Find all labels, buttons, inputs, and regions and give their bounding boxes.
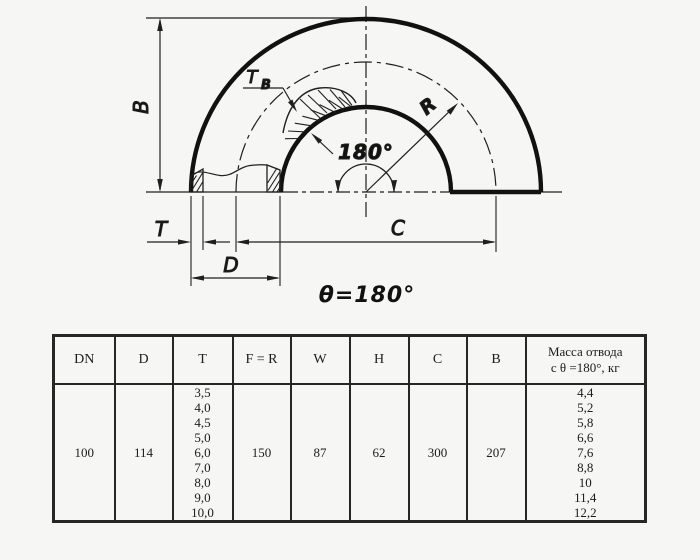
cell-t: 3,5 4,0 4,5 5,0 6,0 7,0 8,0 9,0 10,0 <box>173 384 233 522</box>
tb-hatching <box>285 90 353 139</box>
col-header-w: W <box>291 336 350 385</box>
col-header-t: T <box>173 336 233 385</box>
col-header-d: D <box>115 336 173 385</box>
angle-arrow-left <box>335 180 341 193</box>
dimension-d: D <box>191 253 280 281</box>
right-wall-section <box>267 165 280 192</box>
b-arrow-down <box>157 179 163 192</box>
col-header-f-r: F = R <box>233 336 291 385</box>
cell-h: 62 <box>350 384 409 522</box>
d-arrow-right <box>267 275 280 280</box>
left-port-section <box>190 165 280 192</box>
angle-180-label: 180° <box>338 140 394 164</box>
c-arrow-right <box>483 239 496 244</box>
d-arrow-left <box>191 275 204 280</box>
tb-label-sub: B <box>261 78 271 93</box>
theta-equals-180-label: θ=180° <box>319 283 415 308</box>
c-label: C <box>391 216 405 240</box>
angle-arrow-right <box>391 180 397 193</box>
col-header-mass: Масса отвода с θ =180°, кг <box>526 336 646 385</box>
cell-f-r: 150 <box>233 384 291 522</box>
t-label: T <box>155 217 169 241</box>
col-header-h: H <box>350 336 409 385</box>
table-data-row: 100 114 3,5 4,0 4,5 5,0 6,0 7,0 8,0 9,0 … <box>54 384 646 522</box>
table-header-row: DN D T F = R W H C B Масса отвода с θ =1… <box>54 336 646 385</box>
cell-d: 114 <box>115 384 173 522</box>
tb-label-main: T <box>247 67 260 88</box>
cell-w: 87 <box>291 384 350 522</box>
col-header-b: B <box>467 336 526 385</box>
center-lines <box>146 6 562 217</box>
elbow-technical-drawing: T B B T <box>0 0 700 330</box>
dimension-c: C <box>236 216 496 245</box>
t-arrow-left <box>203 239 216 244</box>
t-arrow-right <box>178 239 191 244</box>
cell-c: 300 <box>409 384 467 522</box>
dimension-b: B <box>129 18 163 192</box>
b-arrow-up <box>157 18 163 31</box>
dimension-t: T <box>147 217 230 245</box>
cell-dn: 100 <box>54 384 115 522</box>
cell-mass: 4,4 5,2 5,8 6,6 7,6 8,8 10 11,4 12,2 <box>526 384 646 522</box>
col-header-dn: DN <box>54 336 115 385</box>
dimensions-table: DN D T F = R W H C B Масса отвода с θ =1… <box>52 334 647 523</box>
r-label: R <box>415 93 440 119</box>
d-label: D <box>223 253 238 277</box>
c-arrow-left <box>236 239 249 244</box>
col-header-c: C <box>409 336 467 385</box>
b-label: B <box>129 100 153 114</box>
page: T B B T <box>0 0 700 560</box>
cell-b: 207 <box>467 384 526 522</box>
